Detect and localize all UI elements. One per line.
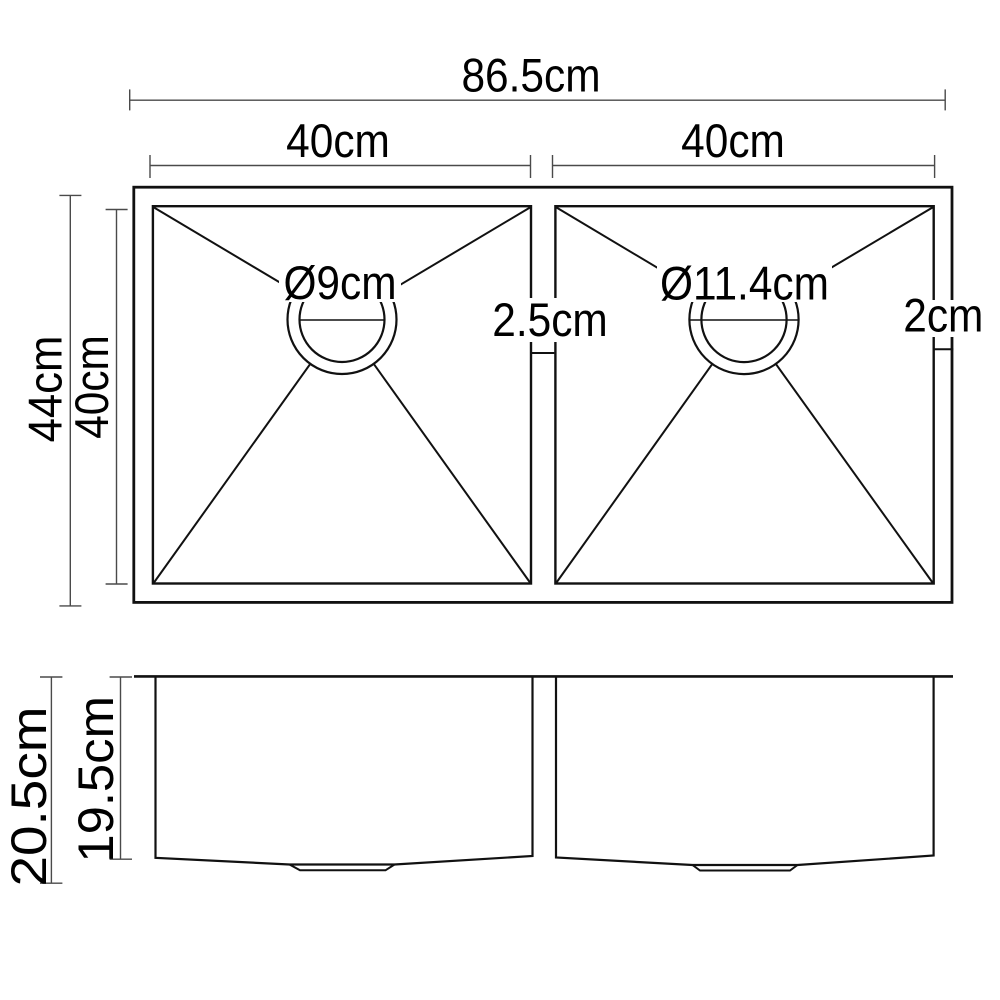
svg-text:2.5cm: 2.5cm <box>492 293 607 347</box>
svg-text:2cm: 2cm <box>903 288 983 342</box>
svg-text:19.5cm: 19.5cm <box>67 696 124 863</box>
svg-text:20.5cm: 20.5cm <box>1 706 57 886</box>
svg-text:Ø11.4cm: Ø11.4cm <box>660 256 829 310</box>
svg-text:40cm: 40cm <box>681 114 785 168</box>
svg-text:40cm: 40cm <box>65 335 119 439</box>
svg-text:40cm: 40cm <box>286 114 390 168</box>
svg-text:Ø9cm: Ø9cm <box>283 256 396 310</box>
svg-text:86.5cm: 86.5cm <box>461 48 600 102</box>
